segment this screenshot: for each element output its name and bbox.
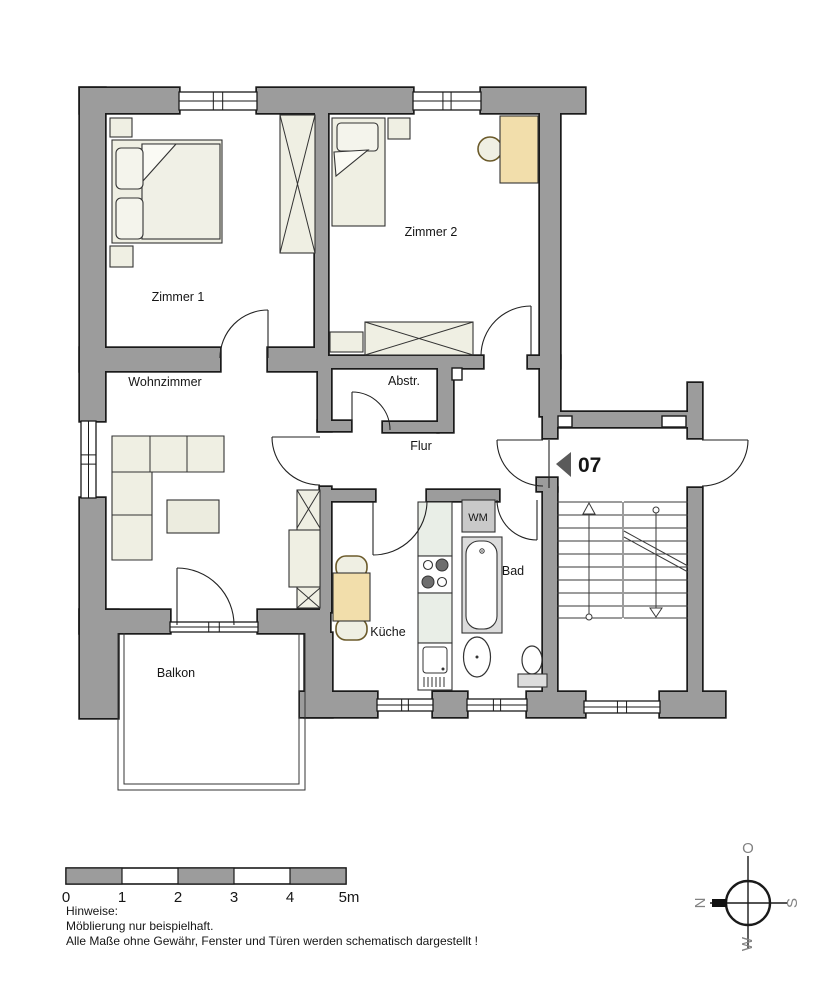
bathroom-door — [497, 500, 537, 540]
wall-segment — [80, 88, 105, 421]
wall-segment — [300, 692, 377, 717]
wall-segment — [433, 692, 467, 717]
door-frame — [662, 416, 686, 427]
pillow — [337, 123, 378, 151]
bathroom-fixtures — [462, 500, 547, 687]
apartment-number: 07 — [578, 454, 601, 477]
pillow — [116, 198, 143, 239]
compass-west: W — [739, 936, 756, 951]
washbasin-icon — [464, 637, 491, 677]
scale-tick: 1 — [118, 889, 126, 906]
wohnzimmer-furniture — [112, 436, 320, 608]
apartment-number-marker: 07 — [556, 452, 601, 477]
kitchen-counter — [418, 593, 452, 643]
wohnzimmer-door — [272, 437, 320, 485]
door-frame — [558, 416, 572, 427]
nightstand — [110, 118, 132, 137]
room-label-bad: Bad — [502, 564, 524, 578]
wardrobe-icon — [280, 115, 315, 253]
wall-segment — [330, 490, 375, 501]
stair-up-arrow-icon — [583, 503, 595, 514]
room-label-kueche: Küche — [370, 625, 405, 639]
wall-segment — [257, 88, 413, 113]
stair-down-arrow-icon — [650, 608, 662, 617]
corner-sofa — [112, 436, 224, 560]
wardrobe-icon — [365, 322, 473, 355]
wall-segment — [315, 113, 328, 359]
compass-south: S — [784, 898, 801, 908]
notes-line: Alle Maße ohne Gewähr, Fenster und Türen… — [66, 934, 478, 948]
compass-east: O — [742, 840, 754, 857]
compass-north: N — [692, 898, 709, 909]
wall-segment — [527, 692, 585, 717]
stove-icon — [418, 556, 452, 593]
bathtub-icon — [462, 537, 502, 633]
room-label-flur: Flur — [410, 439, 432, 453]
scale-tick: 5m — [339, 889, 360, 906]
wall-segment — [320, 487, 331, 612]
room-label-wohnzimmer: Wohnzimmer — [128, 375, 201, 389]
floorplan-drawing: Zimmer 1 Zimmer 2 Wohnzimmer Abstr. Flur… — [0, 0, 833, 1000]
scale-tick: 3 — [230, 889, 238, 906]
washing-machine-label: WM — [468, 512, 488, 524]
wall-segment — [688, 488, 702, 694]
scale-tick: 2 — [174, 889, 182, 906]
room-label-balkon: Balkon — [157, 666, 195, 680]
notes-line: Möblierung nur beispielhaft. — [66, 919, 213, 933]
wall-segment — [80, 610, 118, 718]
notes: Hinweise: Möblierung nur beispielhaft. A… — [66, 904, 478, 948]
neighbor-door — [702, 440, 748, 486]
wall-segment — [540, 113, 560, 416]
kitchen-counter — [418, 502, 452, 556]
room-label-zimmer1: Zimmer 1 — [152, 290, 205, 304]
wall-segment — [660, 692, 725, 717]
wall-segment — [543, 488, 557, 694]
wall-segment — [328, 356, 483, 368]
scale-bar: 0 1 2 3 4 5m — [62, 868, 360, 906]
kitchen-furniture — [333, 502, 452, 690]
stair-rail-post — [653, 507, 659, 513]
notes-heading: Hinweise: — [66, 904, 118, 918]
pillow — [116, 148, 143, 189]
wall-segment — [258, 610, 330, 633]
zimmer1-door — [220, 310, 268, 358]
desk — [500, 116, 538, 183]
wall-segment — [543, 416, 557, 438]
entrance-arrow-icon — [556, 452, 571, 477]
wall-segment — [318, 357, 331, 431]
stair-rail-post — [586, 614, 592, 620]
dining-table — [333, 573, 370, 621]
kitchen-sink-icon — [418, 643, 452, 690]
compass-icon: O N S W — [692, 840, 801, 951]
desk-chair — [478, 137, 502, 161]
floorplan-page: Zimmer 1 Zimmer 2 Wohnzimmer Abstr. Flur… — [0, 0, 833, 1000]
compass-north-bar — [712, 899, 727, 907]
staircase — [557, 502, 688, 620]
wall-segment — [438, 367, 453, 432]
wall-segment — [481, 88, 585, 113]
wall-segment — [383, 422, 438, 432]
hall-wardrobe-icon — [289, 490, 320, 608]
zimmer2-door — [481, 306, 531, 356]
zimmer1-furniture — [110, 115, 315, 267]
door-frame — [452, 368, 462, 380]
wall-segment — [427, 490, 499, 501]
shelf — [330, 332, 363, 352]
balcony-door — [177, 568, 234, 625]
nightstand — [110, 246, 133, 267]
room-label-abstellraum: Abstr. — [388, 374, 420, 388]
scale-tick: 4 — [286, 889, 294, 906]
coffee-table — [167, 500, 219, 533]
balcony-outline — [118, 633, 305, 790]
room-label-zimmer2: Zimmer 2 — [405, 225, 458, 239]
shelf — [388, 118, 410, 139]
wall-segment — [688, 383, 702, 438]
wall-segment — [318, 421, 351, 431]
wall-segment — [528, 356, 560, 368]
wall-segment — [80, 348, 220, 371]
